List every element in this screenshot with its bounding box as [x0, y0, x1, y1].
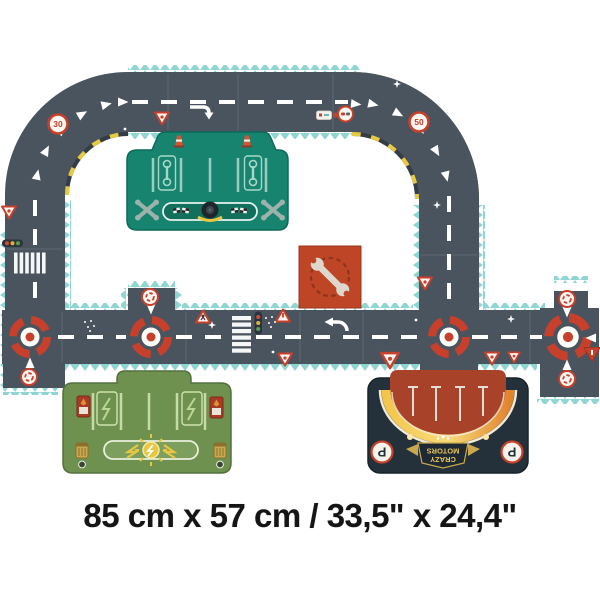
- brand-text: CRAZY MOTORS: [427, 447, 460, 465]
- charging-station-piece: [63, 371, 231, 473]
- dimensions-caption: 85 cm x 57 cm / 33,5" x 24,4": [0, 497, 600, 535]
- product-image: 30 50: [0, 0, 600, 600]
- parking-letter-left: P: [377, 445, 386, 460]
- parking-letter-right: P: [507, 445, 516, 460]
- road-track: [2, 74, 599, 397]
- speed-50-label: 50: [414, 117, 424, 127]
- speed-sign-30: 30: [49, 115, 68, 134]
- tire-icon: [202, 202, 219, 219]
- parking-garage-piece: CRAZY MOTORS P P: [368, 370, 528, 473]
- speed-30-label: 30: [53, 119, 63, 129]
- traffic-light-horizontal: [2, 240, 23, 248]
- traffic-light-vertical: [255, 312, 263, 335]
- speed-sign-50: 50: [410, 113, 429, 132]
- no-overtaking-sign: [338, 107, 353, 122]
- brand-line2: MOTORS: [427, 447, 460, 456]
- pit-stop-garage-piece: [127, 132, 288, 230]
- repair-square-piece: [299, 246, 361, 308]
- pit-banner: [163, 202, 257, 221]
